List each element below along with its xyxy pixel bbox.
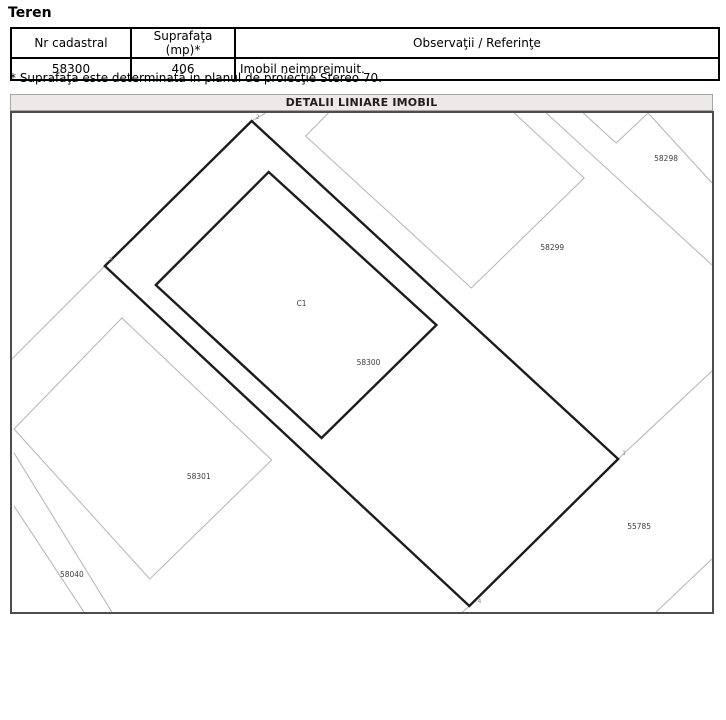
parcel-58298-line (648, 113, 712, 183)
label-point-4: 4 (477, 597, 481, 605)
cadastral-document-page: Teren Nr cadastral Suprafaţa (mp)* Obser… (0, 0, 726, 720)
label-parcel-58301: 58301 (187, 472, 211, 481)
boundary-extension-point1 (618, 371, 712, 459)
header-observatii: Observaţii / Referinţe (235, 28, 719, 58)
label-parcel-58299: 58299 (540, 243, 564, 252)
map-title-bar: DETALII LINIARE IMOBIL (10, 94, 713, 111)
boundary-extension-point3 (12, 266, 105, 359)
parcel-58298-long-line (546, 113, 712, 265)
section-title: Teren (8, 5, 52, 21)
label-point-3: 3 (109, 256, 113, 264)
parcel-58299-outline (306, 113, 585, 288)
road-58040-edge-a (14, 453, 112, 612)
label-parcel-58040: 58040 (60, 570, 84, 579)
road-58040-edge-b (14, 506, 84, 612)
header-nr-cadastral: Nr cadastral (11, 28, 131, 58)
label-parcel-58298: 58298 (654, 154, 678, 163)
label-point-2: 2 (256, 113, 260, 121)
label-parcel-55785: 55785 (627, 522, 651, 531)
stereo70-footnote: * Suprafaţa este determinată in planul d… (10, 71, 382, 85)
header-suprafata: Suprafaţa (mp)* (131, 28, 235, 58)
table-header-row: Nr cadastral Suprafaţa (mp)* Observaţii … (11, 28, 719, 58)
label-parcel-58300: 58300 (357, 358, 381, 367)
label-building-c1: C1 (297, 299, 307, 308)
parcel-58298-notch (583, 113, 648, 143)
plan-svg: 58298 58299 C1 58300 58301 58040 55785 2… (12, 113, 712, 612)
parcel-55785-corner-line (656, 559, 712, 612)
boundary-extension-point4 (459, 606, 469, 612)
cadastral-plan: 58298 58299 C1 58300 58301 58040 55785 2… (10, 111, 714, 614)
label-point-1: 1 (622, 449, 626, 457)
